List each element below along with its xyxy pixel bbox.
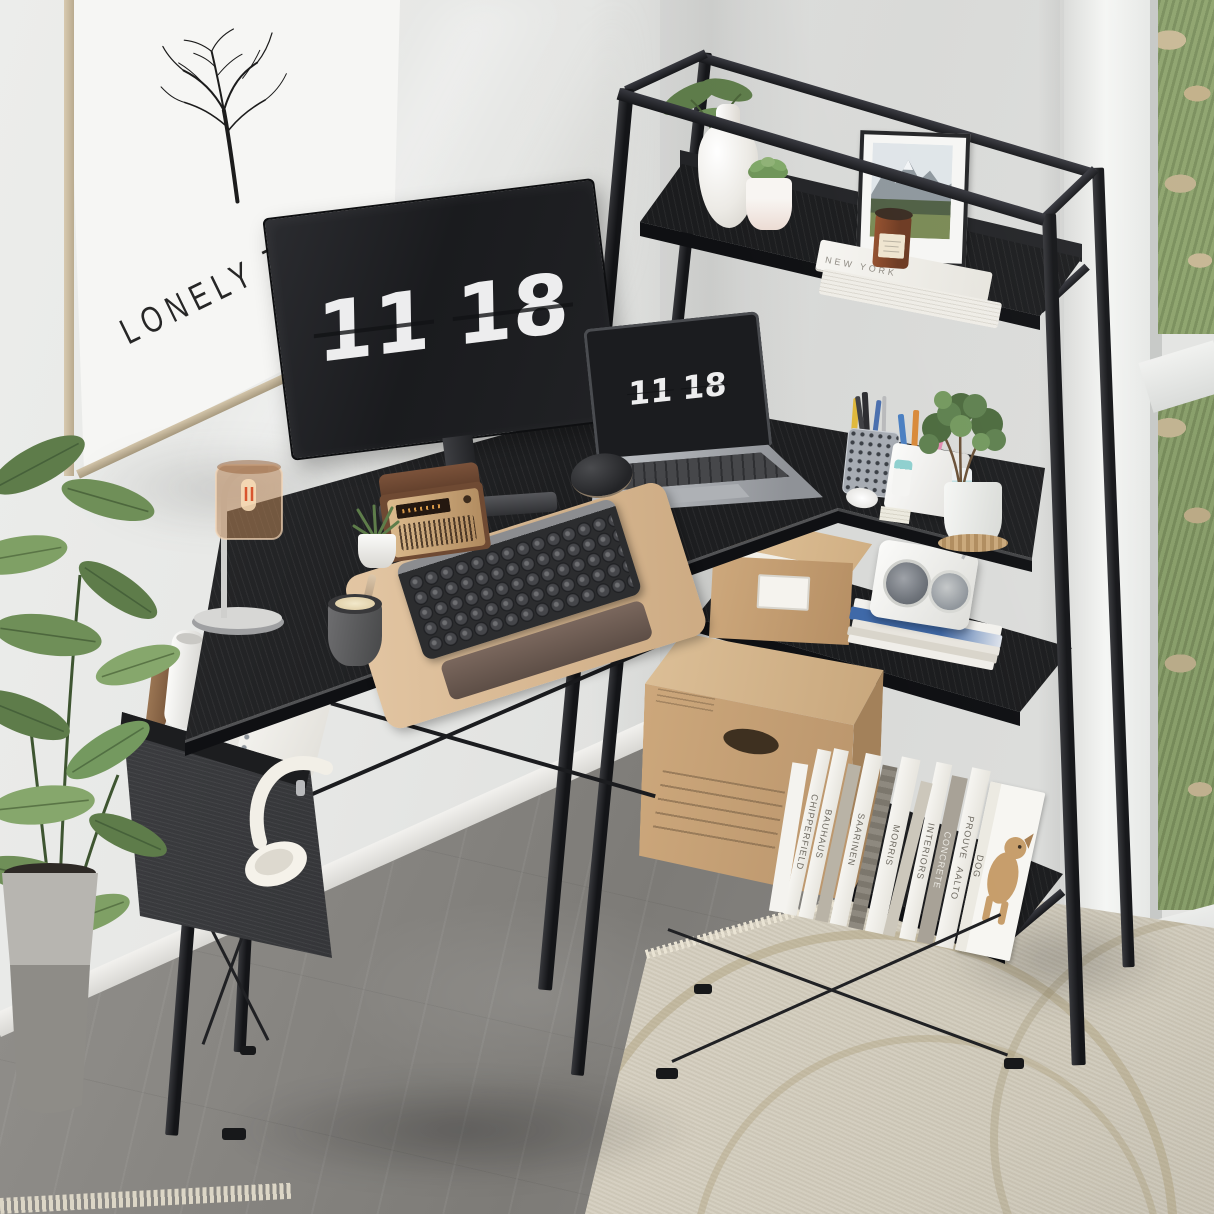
window-glass-upper — [1158, 0, 1214, 334]
candle-label — [878, 233, 906, 259]
radio-knob — [463, 495, 472, 504]
window-glass-lower — [1158, 362, 1214, 910]
laptop-flip-clock: 11 18 — [629, 368, 728, 411]
succulent-pot — [358, 534, 396, 568]
book-spine-text: PROUVE — [957, 815, 976, 860]
mug-latte — [335, 597, 375, 610]
monitor-flip-clock: 11 18 — [316, 263, 570, 376]
fiddle-leaf-plant — [0, 405, 243, 1150]
radio-grille — [398, 515, 477, 551]
speaker-driver-left — [880, 556, 935, 611]
clock-minutes: 18 — [683, 368, 727, 405]
headphones — [238, 752, 354, 908]
succulent-shelf-pot — [746, 178, 792, 230]
leg-foot — [694, 984, 712, 994]
leg-foot — [656, 1068, 678, 1079]
bookshelf-books-row: CHIPPERFIELD BAUHAUS SAARINEN MORRIS INT… — [765, 669, 1061, 962]
poster-tree-art — [148, 7, 308, 216]
latte-mug — [328, 584, 388, 680]
speaker-driver-right — [925, 567, 974, 616]
banker-box-label-holder — [757, 574, 811, 611]
clock-hours: 11 — [629, 373, 673, 410]
leg-foot — [1004, 1058, 1024, 1069]
clock-hours: 11 — [316, 280, 431, 376]
monitor-screen: 11 18 — [262, 178, 623, 461]
plant-pot-rattan-base — [938, 534, 1008, 552]
clock-minutes: 18 — [455, 263, 570, 359]
book-spine-text: AALTO — [949, 866, 966, 901]
candle-jar — [872, 213, 912, 269]
desk-succulent — [352, 506, 400, 570]
home-office-photo: LONELY TREE — [0, 0, 1214, 1214]
